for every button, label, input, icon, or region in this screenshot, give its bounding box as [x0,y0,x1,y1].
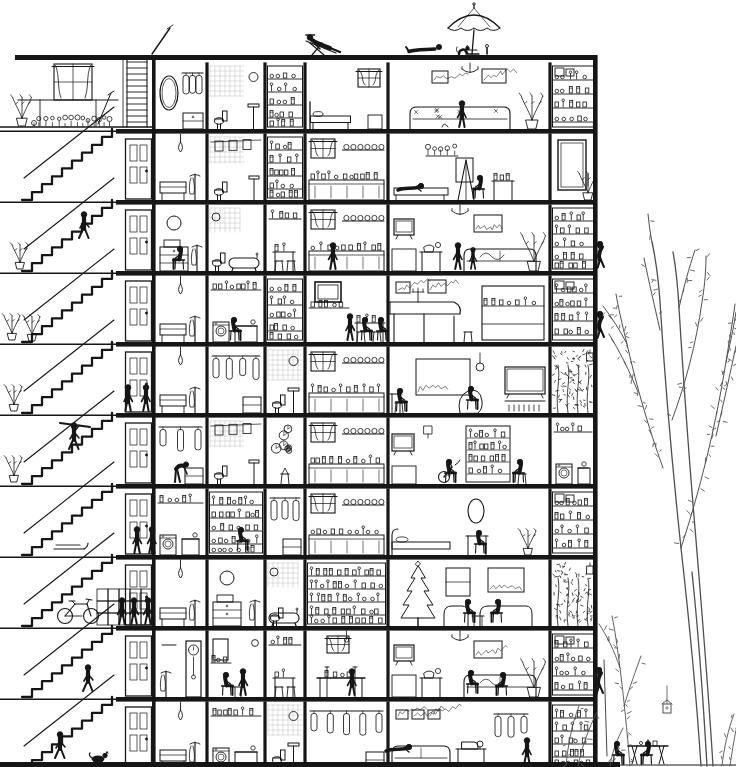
building-section-drawing [0,0,736,767]
illustration-canvas [0,0,736,767]
